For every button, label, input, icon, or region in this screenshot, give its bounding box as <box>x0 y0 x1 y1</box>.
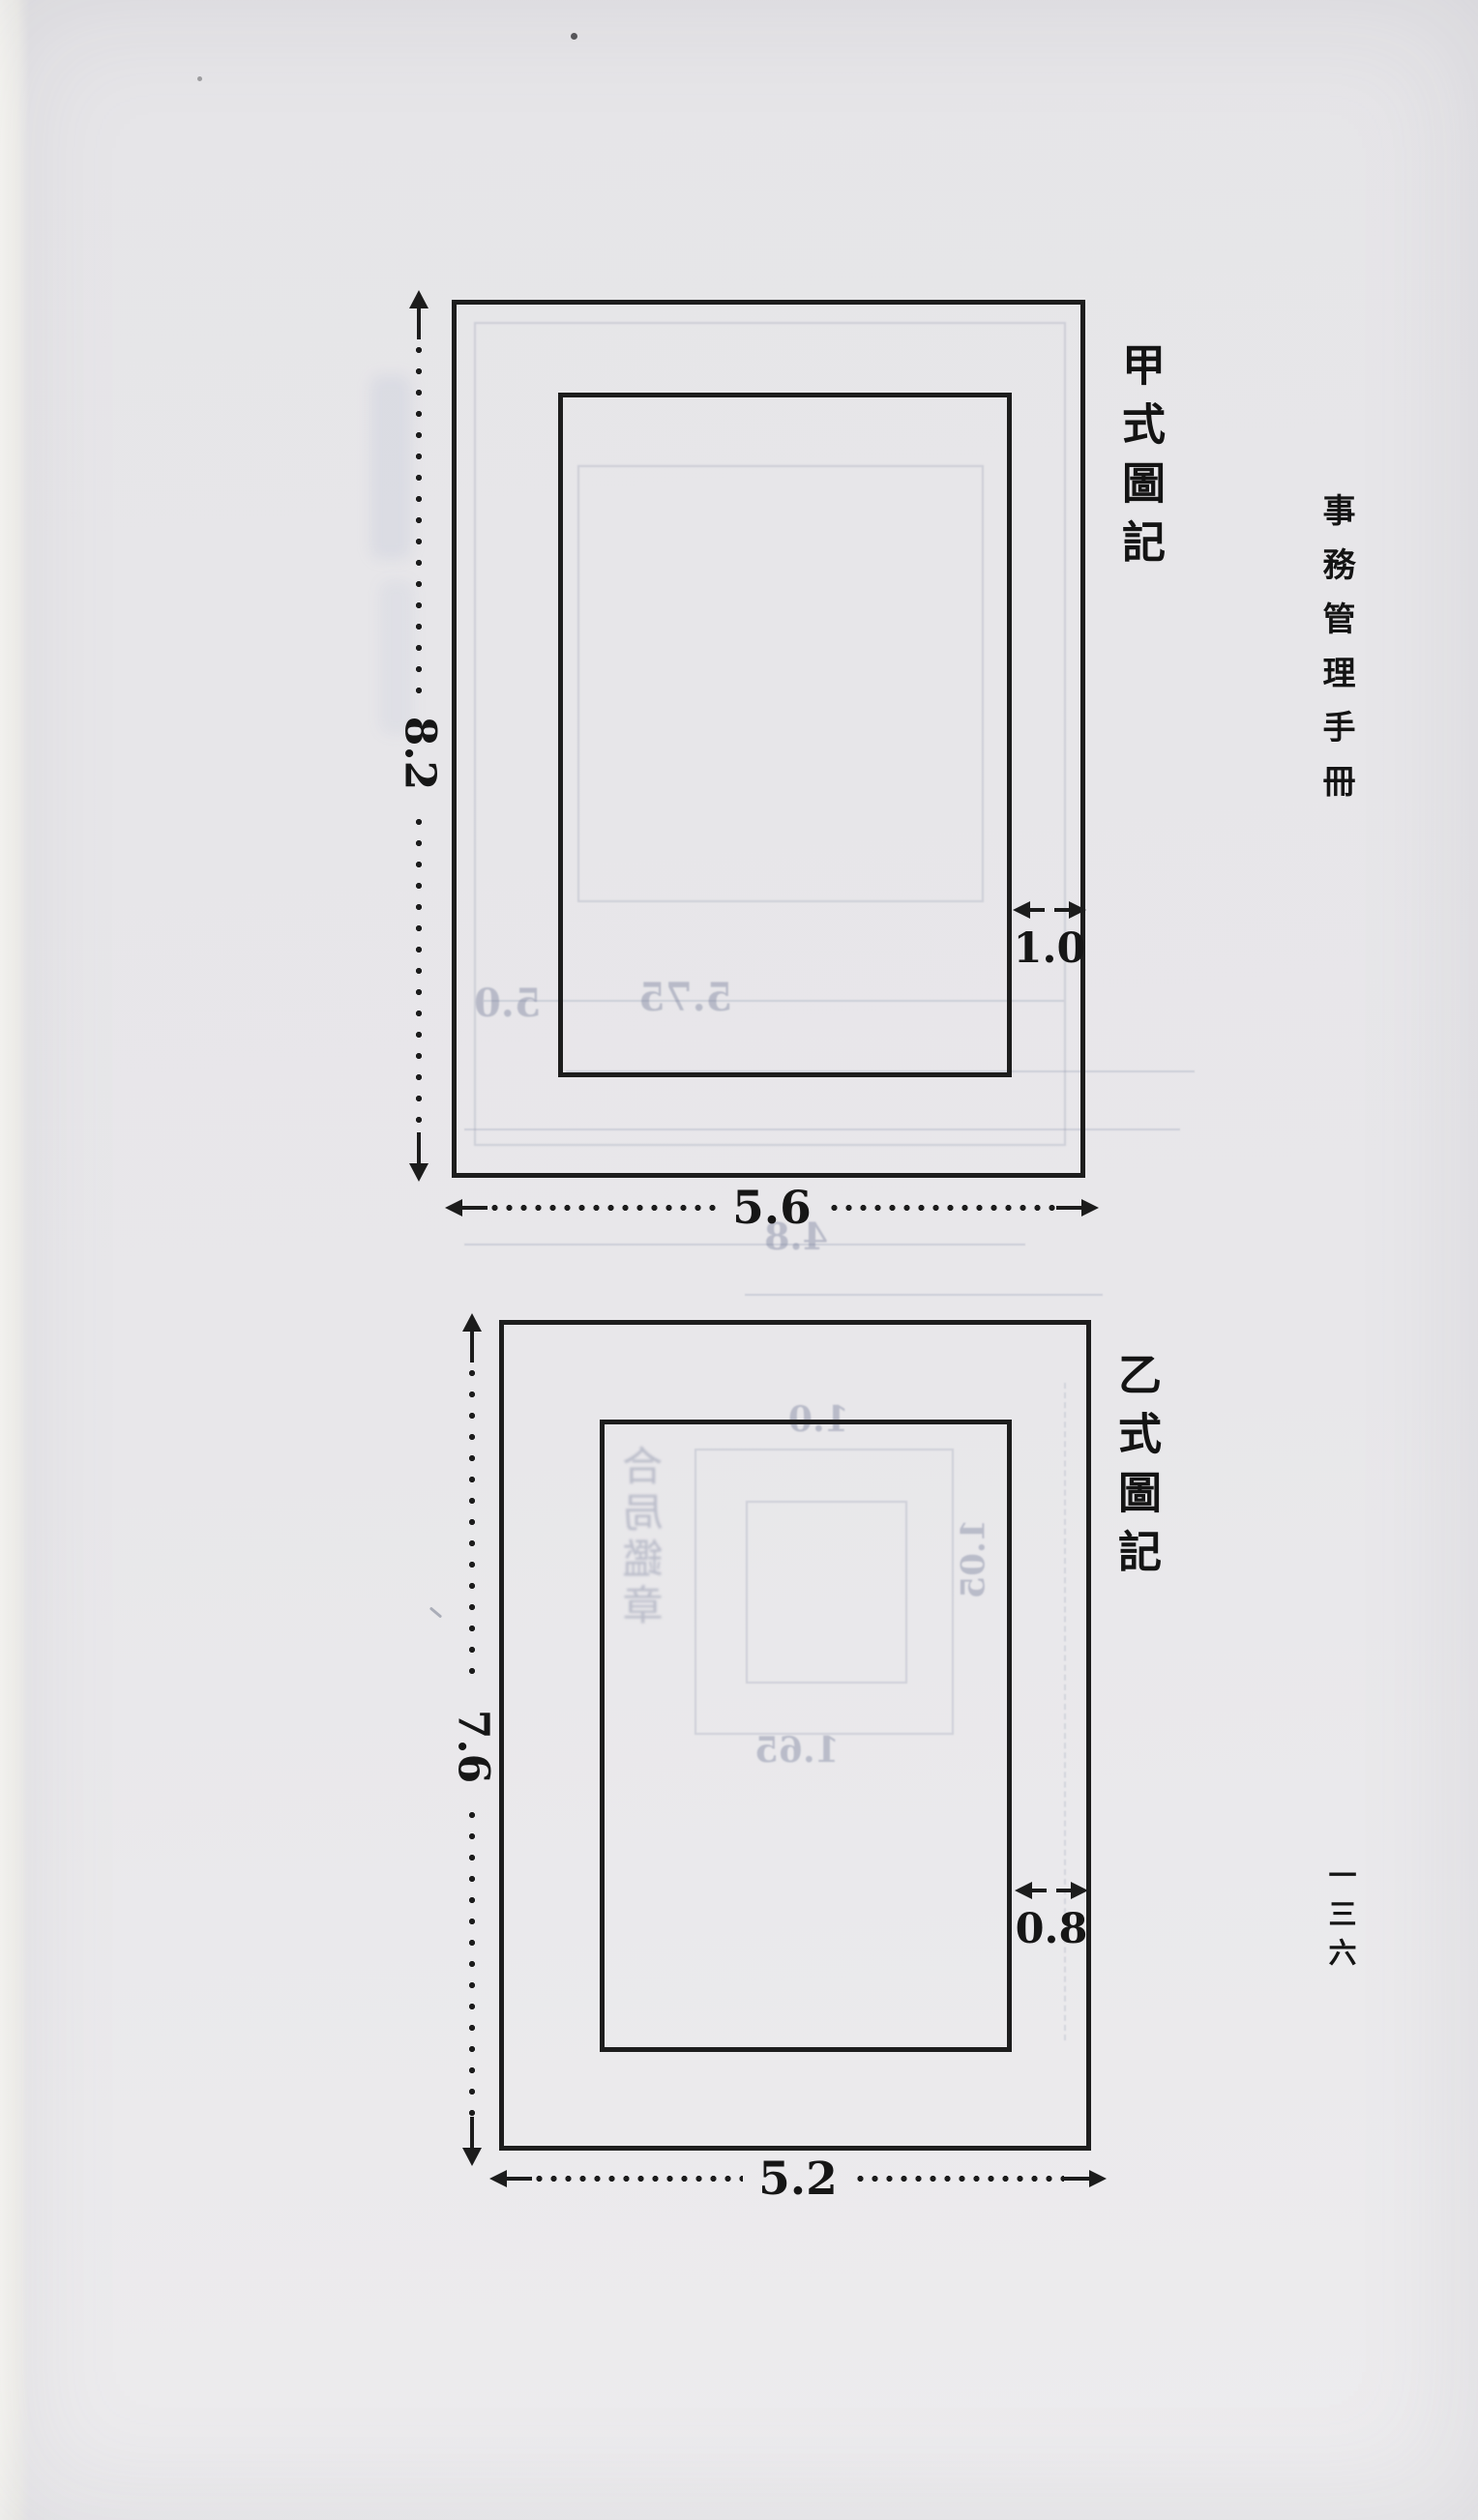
dotted-line <box>853 2175 1064 2183</box>
paper-speck <box>429 1607 442 1619</box>
dimension-stem <box>1056 1206 1081 1210</box>
arrow-gap <box>1045 908 1054 912</box>
dotted-line <box>488 1204 717 1212</box>
dimension-stem <box>1032 1889 1047 1892</box>
dotted-line <box>468 1363 476 1688</box>
diagram-a-title: 甲式圖記 <box>1108 342 1171 578</box>
dotted-line <box>415 811 423 1133</box>
arrow-left-icon <box>1015 1882 1032 1899</box>
diagram-b-width-dimension: 5.2 <box>489 2153 1107 2205</box>
arrow-up-icon <box>409 290 429 308</box>
dimension-stem <box>507 2177 532 2181</box>
dimension-stem <box>1054 908 1069 912</box>
ghost-line <box>464 1244 1025 1245</box>
arrow-down-icon <box>409 1163 429 1182</box>
paper-speck <box>197 76 202 81</box>
arrow-up-icon <box>462 1313 482 1332</box>
dotted-line <box>468 1804 476 2117</box>
dimension-value: 7.6 <box>451 1709 493 1783</box>
dimension-stem <box>462 1206 488 1210</box>
diagram-a-gap-dimension: 1.0 <box>1014 901 1085 970</box>
ghost-line <box>745 1294 1103 1296</box>
dotted-line <box>827 1204 1056 1212</box>
page-left-edge <box>0 0 29 2520</box>
diagram-b-height-dimension: 7.6 <box>459 1313 485 2166</box>
dimension-value: 0.8 <box>1016 1909 1088 1950</box>
arrow-down-icon <box>462 2148 482 2166</box>
dimension-value: 5.6 <box>732 1186 812 1231</box>
paper-speck <box>571 33 577 40</box>
arrow-right-icon <box>1069 901 1086 919</box>
dimension-stem <box>1064 2177 1089 2181</box>
ghost-smudge <box>370 375 411 559</box>
arrow-left-icon <box>489 2170 507 2187</box>
dimension-stem <box>1030 908 1045 912</box>
dimension-stem <box>417 308 421 339</box>
double-arrow-icon <box>1015 1882 1088 1899</box>
diagram-a-inner-rect <box>558 393 1012 1077</box>
diagram-b-gap-dimension: 0.8 <box>1014 1882 1089 1950</box>
arrow-right-icon <box>1081 1199 1099 1216</box>
dimension-value: 8.2 <box>398 716 440 790</box>
arrow-left-icon <box>445 1199 462 1216</box>
arrow-right-icon <box>1071 1882 1088 1899</box>
book-title-vertical: 事務管理手冊 <box>1312 493 1359 818</box>
arrow-gap <box>1047 1889 1056 1892</box>
dimension-stem <box>470 1332 474 1363</box>
dimension-value: 1.0 <box>1014 928 1086 970</box>
dimension-label-wrap: 8.2 <box>406 695 431 811</box>
diagram-b-inner-rect <box>600 1420 1012 2052</box>
arrow-right-icon <box>1089 2170 1107 2187</box>
dimension-stem <box>417 1132 421 1163</box>
double-arrow-icon <box>1013 901 1086 919</box>
dotted-line <box>415 339 423 695</box>
diagram-b-title: 乙式圖記 <box>1105 1352 1168 1588</box>
dimension-label-wrap: 7.6 <box>459 1688 485 1804</box>
page-number: 一三六 <box>1319 1861 1360 1977</box>
dimension-value: 5.2 <box>758 2156 838 2202</box>
dotted-line <box>532 2175 743 2183</box>
dimension-stem <box>1056 1889 1071 1892</box>
diagram-a-width-dimension: 5.6 <box>445 1182 1099 1234</box>
diagram-a-height-dimension: 8.2 <box>406 290 431 1182</box>
dimension-stem <box>470 2117 474 2148</box>
arrow-left-icon <box>1013 901 1030 919</box>
scanned-manual-page: 5.0 5.75 4.8 1.0 1.65 1.05 合局鑑章 甲式圖記 8.2… <box>0 0 1478 2520</box>
